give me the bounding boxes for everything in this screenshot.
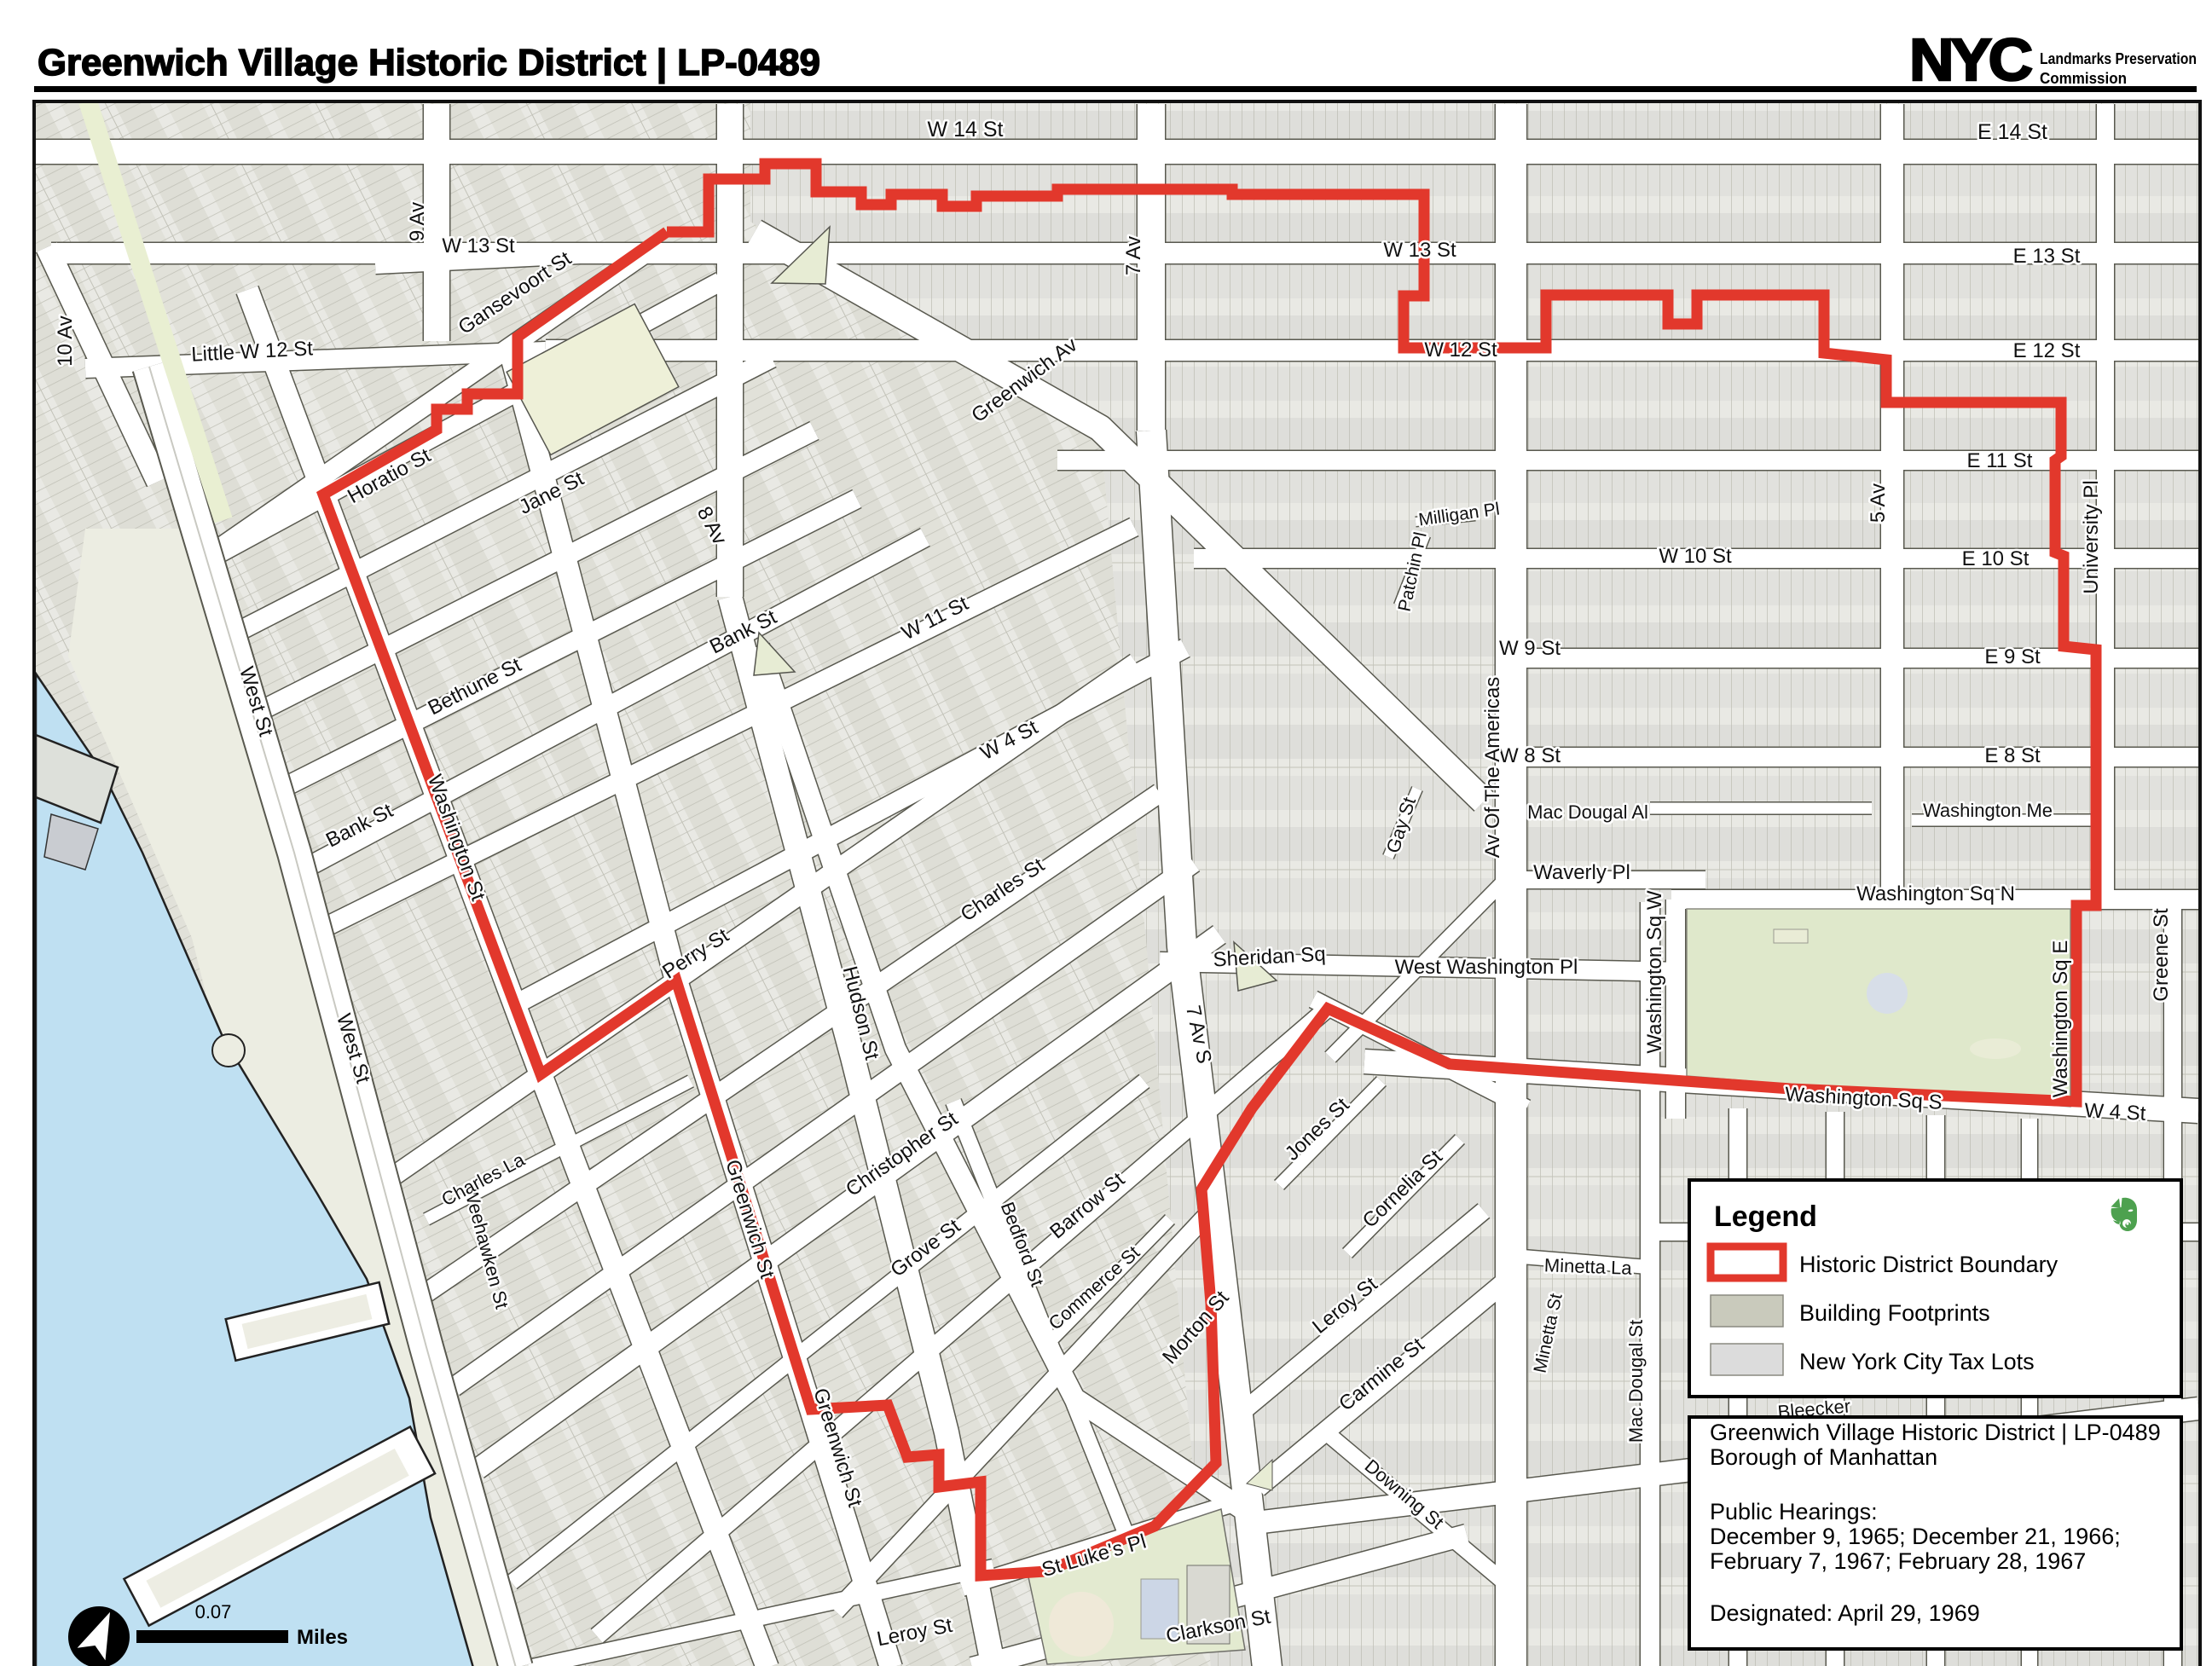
svg-text:Mac Dougal Al: Mac Dougal Al bbox=[1527, 801, 1648, 823]
svg-text:5 Av: 5 Av bbox=[1867, 483, 1890, 523]
svg-text:W 4 St: W 4 St bbox=[2084, 1099, 2147, 1125]
svg-text:Building Footprints: Building Footprints bbox=[1799, 1300, 1990, 1326]
svg-text:Landmarks Preservation: Landmarks Preservation bbox=[2040, 50, 2197, 67]
svg-text:Av Of The Americas: Av Of The Americas bbox=[1481, 677, 1504, 859]
svg-text:E 10 St: E 10 St bbox=[1962, 547, 2030, 570]
svg-text:Greenwich Village Historic Dis: Greenwich Village Historic District | LP… bbox=[38, 42, 820, 84]
svg-text:Greene St: Greene St bbox=[2150, 908, 2173, 1002]
svg-text:E 11 St: E 11 St bbox=[1967, 449, 2033, 472]
svg-text:E 13 St: E 13 St bbox=[2013, 245, 2081, 268]
svg-text:Designated: April 29, 1969: Designated: April 29, 1969 bbox=[1710, 1600, 1980, 1626]
svg-text:Borough of Manhattan: Borough of Manhattan bbox=[1710, 1444, 1937, 1470]
svg-text:Historic District Boundary: Historic District Boundary bbox=[1799, 1252, 2059, 1277]
svg-text:NYC: NYC bbox=[1909, 26, 2032, 93]
svg-text:Washington Sq N: Washington Sq N bbox=[1856, 882, 2015, 905]
svg-text:W 14 St: W 14 St bbox=[928, 118, 1004, 142]
svg-text:E 9 St: E 9 St bbox=[1984, 645, 2041, 668]
svg-text:New York City Tax Lots: New York City Tax Lots bbox=[1799, 1349, 2035, 1374]
svg-text:9 Av: 9 Av bbox=[406, 202, 429, 241]
svg-text:Miles: Miles bbox=[297, 1626, 348, 1649]
svg-text:W 13 St: W 13 St bbox=[442, 234, 515, 257]
svg-text:Washington Sq W: Washington Sq W bbox=[1643, 890, 1666, 1054]
svg-text:W 10 St: W 10 St bbox=[1659, 545, 1732, 568]
svg-text:Mac Dougal St: Mac Dougal St bbox=[1625, 1320, 1647, 1443]
svg-text:E 14 St: E 14 St bbox=[1977, 120, 2047, 144]
svg-text:Minetta La: Minetta La bbox=[1543, 1254, 1632, 1279]
svg-text:Legend: Legend bbox=[1714, 1200, 1817, 1233]
svg-text:University Pl: University Pl bbox=[2080, 480, 2103, 593]
svg-text:Commission: Commission bbox=[2040, 70, 2127, 87]
svg-text:Washington Sq E: Washington Sq E bbox=[2049, 940, 2072, 1098]
svg-text:Public Hearings:: Public Hearings: bbox=[1710, 1499, 1878, 1524]
svg-text:West Washington Pl: West Washington Pl bbox=[1395, 956, 1578, 979]
svg-text:10 Av: 10 Av bbox=[54, 315, 77, 367]
svg-text:W 9 St: W 9 St bbox=[1499, 637, 1561, 660]
svg-text:Waverly Pl: Waverly Pl bbox=[1533, 861, 1630, 884]
svg-text:Washington Me: Washington Me bbox=[1923, 800, 2053, 821]
svg-text:E 12 St: E 12 St bbox=[2013, 339, 2081, 362]
svg-text:W 12 St: W 12 St bbox=[1424, 338, 1497, 362]
svg-text:February 7, 1967; February 28,: February 7, 1967; February 28, 1967 bbox=[1710, 1548, 2086, 1574]
svg-text:Greenwich Village Historic Dis: Greenwich Village Historic District | LP… bbox=[1710, 1420, 2161, 1445]
svg-text:W 13 St: W 13 St bbox=[1383, 239, 1456, 262]
svg-text:December 9, 1965; December 21,: December 9, 1965; December 21, 1966; bbox=[1710, 1524, 2121, 1549]
svg-text:E 8 St: E 8 St bbox=[1984, 744, 2041, 767]
svg-text:0.07: 0.07 bbox=[195, 1601, 232, 1623]
svg-text:7 Av: 7 Av bbox=[1122, 236, 1145, 275]
svg-text:W 8 St: W 8 St bbox=[1499, 744, 1561, 767]
